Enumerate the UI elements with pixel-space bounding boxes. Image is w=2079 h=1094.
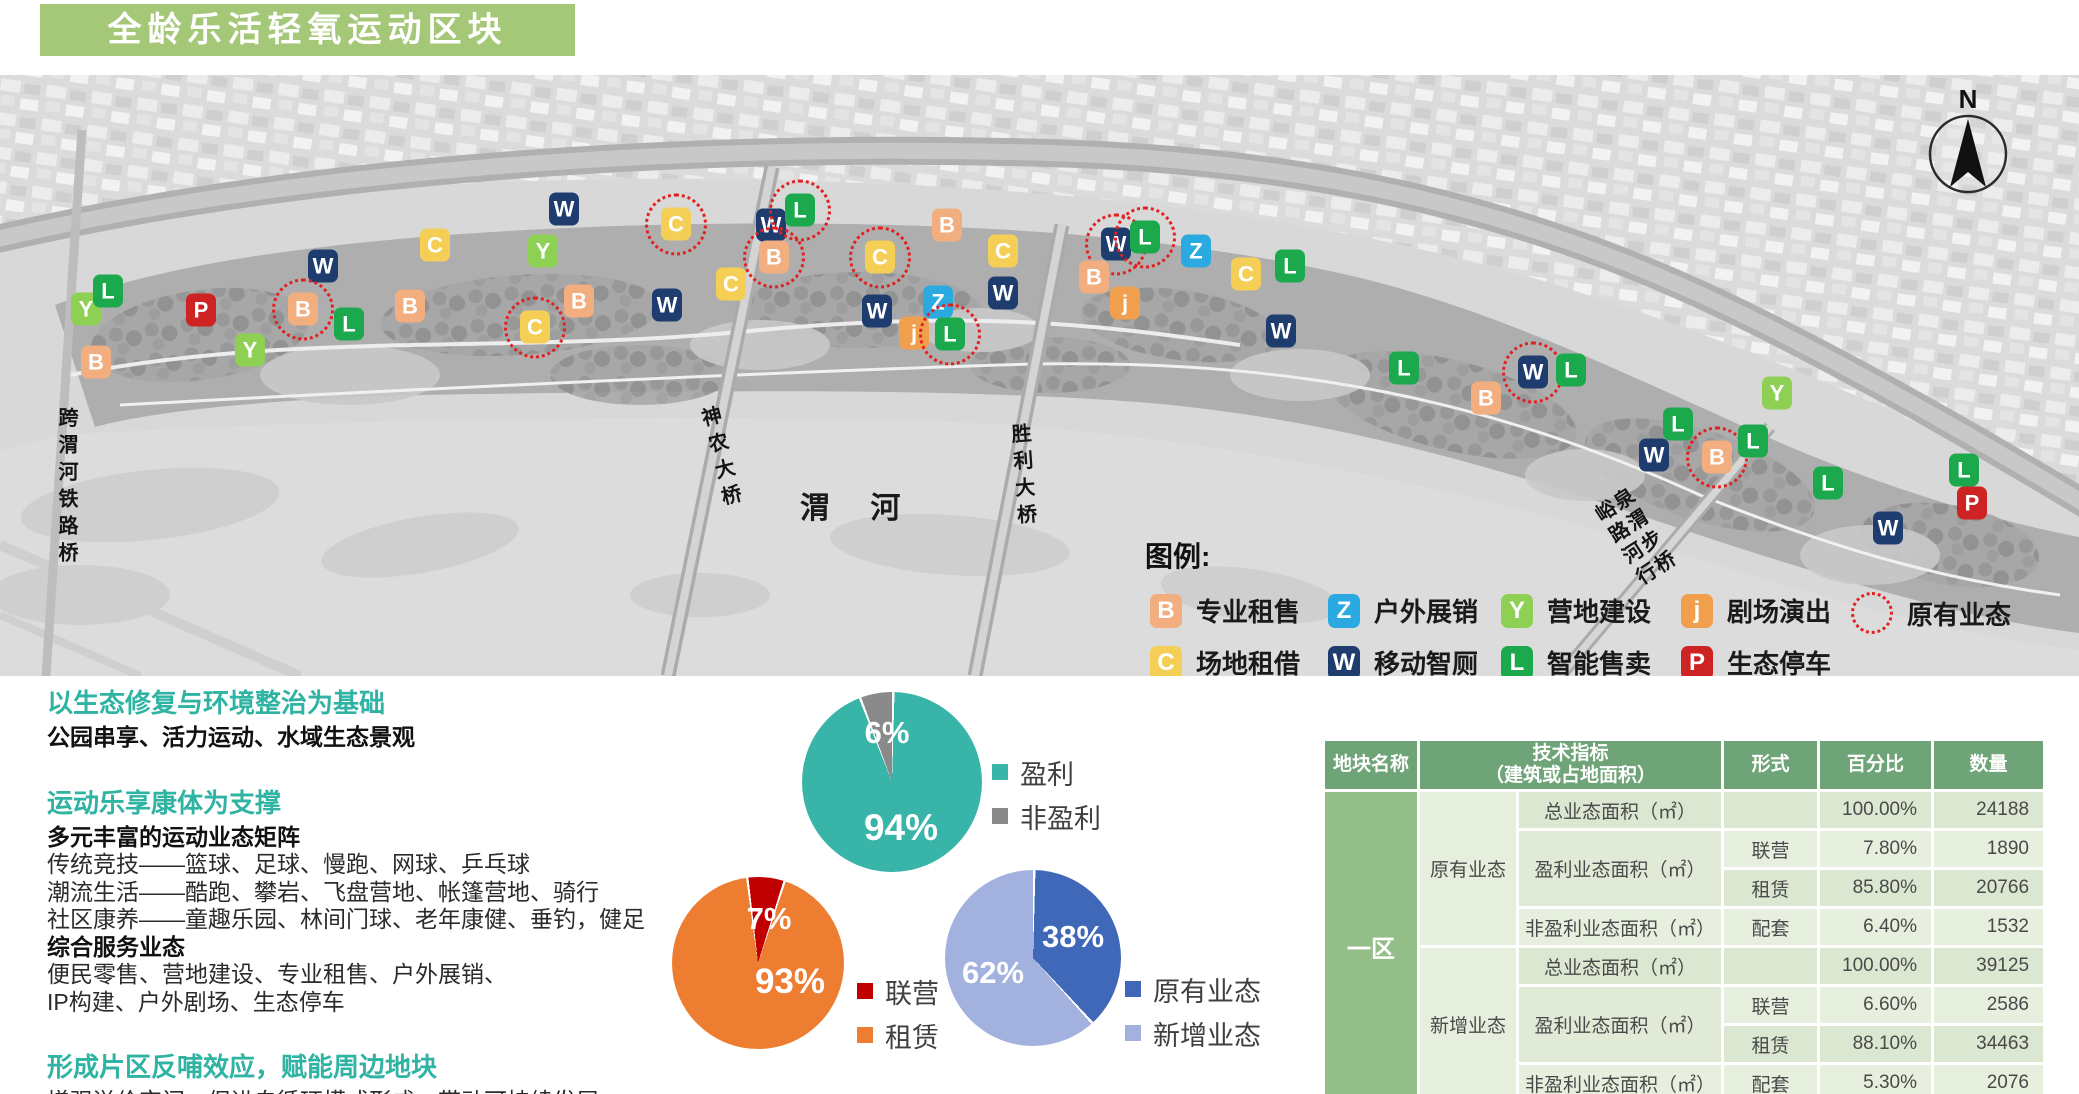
legend-item-label: 场地租借 (1196, 644, 1300, 676)
section-line: 传统竞技——篮球、足球、慢跑、网球、乒乓球 (47, 851, 687, 879)
map-legend-title: 图例: (1145, 535, 1210, 575)
legend-badge-B-icon: B (1150, 594, 1182, 628)
map-marker-W: W (862, 295, 892, 328)
map-marker-W: W (988, 277, 1018, 310)
map-marker-L: L (1813, 467, 1843, 500)
zone-cell: 一区 (1324, 791, 1419, 1094)
text-section-2: 形成片区反哺效应，赋能周边地块增强溢价空间，促进自循环模式形成，带动可持续发展 (47, 1052, 687, 1094)
section-line: 综合服务业态 (47, 934, 687, 962)
compass-icon (1925, 111, 2011, 197)
table-header: 百分比 (1819, 740, 1933, 791)
map-marker-W: W (652, 289, 682, 322)
percent-cell: 85.80% (1819, 869, 1933, 908)
legend-item-label: 原有业态 (1907, 595, 2011, 632)
legend-item-W: W移动智厕 (1328, 644, 1478, 676)
map-marker-L: L (935, 318, 965, 351)
category-cell: 新增业态 (1419, 947, 1518, 1094)
map-marker-B: B (1079, 261, 1109, 294)
indicator-cell: 盈利业态面积（㎡） (1518, 986, 1723, 1064)
pie-legend-label: 非盈利 (1020, 797, 1101, 836)
section-line: 潮流生活——酷跑、攀岩、飞盘营地、帐篷营地、骑行 (47, 879, 687, 907)
map-marker-Y: Y (528, 235, 558, 268)
form-cell (1723, 947, 1819, 986)
quantity-cell: 24188 (1933, 791, 2045, 830)
pie-percent-label: 93% (755, 962, 825, 1002)
legend-item-label: 营地建设 (1547, 592, 1651, 629)
table-header: 地块名称 (1324, 740, 1419, 791)
quantity-cell: 34463 (1933, 1025, 2045, 1064)
map-marker-L: L (1275, 250, 1305, 283)
map-marker-L: L (334, 308, 364, 341)
map-marker-B: B (1471, 382, 1501, 415)
table-header: 形式 (1723, 740, 1819, 791)
pie-percent-label: 6% (865, 715, 910, 751)
aerial-map: 跨渭河铁路桥 神农大桥 胜利大桥 峪泉 路渭 河步 行桥 渭 河 N YLBPY… (0, 75, 2079, 676)
map-marker-C: C (1231, 258, 1261, 291)
map-marker-L: L (1663, 408, 1693, 441)
section-line: IP构建、户外剧场、生态停车 (47, 989, 687, 1017)
form-cell: 联营 (1723, 986, 1819, 1025)
pie-percent-label: 7% (747, 901, 792, 937)
legend-item-j: j剧场演出 (1681, 592, 1831, 629)
section-line: 社区康养——童趣乐园、林间门球、老年康健、垂钓，健足 (47, 906, 687, 934)
form-cell: 配套 (1723, 908, 1819, 947)
percent-cell: 5.30% (1819, 1064, 1933, 1094)
pie-legend-entry: 盈利 (992, 750, 1101, 794)
map-marker-C: C (661, 208, 691, 241)
map-marker-L: L (1556, 354, 1586, 387)
legend-swatch-icon (992, 808, 1008, 824)
indicator-cell: 总业态面积（㎡） (1518, 947, 1723, 986)
map-marker-B: B (564, 285, 594, 318)
legend-badge-P-icon: P (1681, 646, 1713, 677)
form-cell: 租赁 (1723, 869, 1819, 908)
section-heading: 形成片区反哺效应，赋能周边地块 (47, 1052, 687, 1082)
pie-legend-label: 租赁 (885, 1016, 939, 1055)
pie-chart-0: 94%6%盈利非盈利 (802, 692, 982, 872)
map-marker-C: C (865, 241, 895, 274)
map-marker-L: L (1949, 454, 1979, 487)
map-marker-W: W (308, 250, 338, 283)
pie-chart-2: 38%62%原有业态新增业态 (945, 870, 1121, 1046)
map-marker-L: L (1389, 352, 1419, 385)
quantity-cell: 1532 (1933, 908, 2045, 947)
map-marker-Y: Y (1762, 377, 1792, 410)
table-header: 数量 (1933, 740, 2045, 791)
percent-cell: 100.00% (1819, 947, 1933, 986)
table-header: 技术指标 （建筑或占地面积） (1419, 740, 1723, 791)
legend-item-label: 智能售卖 (1547, 644, 1651, 676)
legend-item-existing: 原有业态 (1851, 592, 2011, 634)
legend-swatch-icon (1125, 981, 1141, 997)
pie-legend-entry: 联营 (857, 969, 939, 1013)
legend-item-P: P生态停车 (1681, 644, 1831, 676)
pie-legend-entry: 租赁 (857, 1013, 939, 1057)
map-marker-B: B (395, 290, 425, 323)
text-section-1: 运动乐享康体为支撑多元丰富的运动业态矩阵传统竞技——篮球、足球、慢跑、网球、乒乓… (47, 788, 687, 1017)
percent-cell: 6.40% (1819, 908, 1933, 947)
map-aerial-art (0, 75, 2079, 676)
section-heading: 运动乐享康体为支撑 (47, 788, 687, 818)
indicator-cell: 盈利业态面积（㎡） (1518, 830, 1723, 908)
legend-item-B: B专业租售 (1150, 592, 1300, 629)
legend-item-label: 专业租售 (1196, 592, 1300, 629)
map-marker-Z: Z (1181, 235, 1211, 268)
form-cell: 配套 (1723, 1064, 1819, 1094)
pie-percent-label: 62% (962, 955, 1024, 991)
legend-badge-W-icon: W (1328, 646, 1360, 677)
map-marker-C: C (520, 311, 550, 344)
table-row: 一区原有业态总业态面积（㎡）100.00%24188 (1324, 791, 2045, 830)
indicator-cell: 非盈利业态面积（㎡） (1518, 1064, 1723, 1094)
legend-item-C: C场地租借 (1150, 644, 1300, 676)
map-marker-W: W (1639, 439, 1669, 472)
legend-swatch-icon (1125, 1025, 1141, 1041)
page-title: 全龄乐活轻氧运动区块 (40, 4, 575, 56)
pie-legend-label: 盈利 (1020, 753, 1074, 792)
quantity-cell: 2076 (1933, 1064, 2045, 1094)
legend-item-label: 生态停车 (1727, 644, 1831, 676)
legend-swatch-icon (857, 1027, 873, 1043)
dotted-circle-icon (1851, 592, 1893, 634)
north-label: N (1922, 87, 2014, 111)
pie-legend-entry: 原有业态 (1125, 967, 1261, 1011)
percent-cell: 7.80% (1819, 830, 1933, 869)
map-marker-Y: Y (235, 334, 265, 367)
map-marker-B: B (288, 293, 318, 326)
map-marker-C: C (420, 229, 450, 262)
legend-badge-Z-icon: Z (1328, 594, 1360, 628)
legend-swatch-icon (992, 764, 1008, 780)
percent-cell: 100.00% (1819, 791, 1933, 830)
percent-cell: 6.60% (1819, 986, 1933, 1025)
pie-percent-label: 94% (864, 807, 938, 849)
planning-slide: 全龄乐活轻氧运动区块 (0, 0, 2079, 1094)
text-section-0: 以生态修复与环境整治为基础公园串享、活力运动、水域生态景观 (47, 688, 687, 752)
summary-text-panel: 以生态修复与环境整治为基础公园串享、活力运动、水域生态景观运动乐享康体为支撑多元… (47, 688, 687, 1094)
legend-item-label: 剧场演出 (1727, 592, 1831, 629)
map-marker-L: L (1738, 425, 1768, 458)
map-marker-L: L (785, 194, 815, 227)
pie-legend: 联营租赁 (857, 969, 939, 1057)
form-cell (1723, 791, 1819, 830)
legend-swatch-icon (857, 983, 873, 999)
section-line: 多元丰富的运动业态矩阵 (47, 824, 687, 852)
bridge-label-railway: 跨渭河铁路桥 (52, 407, 81, 569)
table-row: 新增业态总业态面积（㎡）100.00%39125 (1324, 947, 2045, 986)
pie-legend-entry: 非盈利 (992, 794, 1101, 838)
legend-item-Z: Z户外展销 (1328, 592, 1478, 629)
legend-badge-L-icon: L (1501, 646, 1533, 677)
pie-chart-1: 7%93%联营租赁 (672, 877, 844, 1049)
legend-item-Y: Y营地建设 (1501, 592, 1651, 629)
pie-legend-label: 原有业态 (1153, 970, 1261, 1009)
river-label: 渭 河 (800, 483, 916, 527)
map-marker-P: P (1957, 487, 1987, 520)
legend-item-label: 户外展销 (1374, 592, 1478, 629)
map-marker-C: C (716, 268, 746, 301)
indicator-cell: 非盈利业态面积（㎡） (1518, 908, 1723, 947)
section-line: 增强溢价空间，促进自循环模式形成，带动可持续发展 (47, 1088, 687, 1094)
map-marker-B: B (81, 346, 111, 379)
legend-item-L: L智能售卖 (1501, 644, 1651, 676)
legend-badge-Y-icon: Y (1501, 594, 1533, 628)
legend-item-label: 移动智厕 (1374, 644, 1478, 676)
map-marker-L: L (93, 275, 123, 308)
map-marker-W: W (1518, 356, 1548, 389)
pie-legend-label: 联营 (885, 972, 939, 1011)
quantity-cell: 39125 (1933, 947, 2045, 986)
pie-legend: 原有业态新增业态 (1125, 967, 1261, 1055)
quantity-cell: 20766 (1933, 869, 2045, 908)
map-marker-W: W (1266, 315, 1296, 348)
map-marker-j: j (1110, 287, 1140, 320)
pie-legend: 盈利非盈利 (992, 750, 1101, 838)
map-marker-W: W (1873, 512, 1903, 545)
map-marker-C: C (988, 235, 1018, 268)
pie-legend-entry: 新增业态 (1125, 1011, 1261, 1055)
form-cell: 联营 (1723, 830, 1819, 869)
section-heading: 以生态修复与环境整治为基础 (47, 688, 687, 718)
legend-badge-C-icon: C (1150, 646, 1182, 677)
section-line: 便民零售、营地建设、专业租售、户外展销、 (47, 961, 687, 989)
north-compass: N (1922, 87, 2014, 207)
map-marker-L: L (1130, 221, 1160, 254)
percent-cell: 88.10% (1819, 1025, 1933, 1064)
category-cell: 原有业态 (1419, 791, 1518, 947)
map-marker-P: P (186, 294, 216, 327)
indicator-table: 地块名称技术指标 （建筑或占地面积）形式百分比数量一区原有业态总业态面积（㎡）1… (1322, 738, 2046, 1094)
form-cell: 租赁 (1723, 1025, 1819, 1064)
map-marker-B: B (932, 209, 962, 242)
map-marker-B: B (759, 241, 789, 274)
map-marker-W: W (549, 193, 579, 226)
quantity-cell: 1890 (1933, 830, 2045, 869)
quantity-cell: 2586 (1933, 986, 2045, 1025)
pie-legend-label: 新增业态 (1153, 1014, 1261, 1053)
section-line: 公园串享、活力运动、水域生态景观 (47, 724, 687, 752)
indicator-cell: 总业态面积（㎡） (1518, 791, 1723, 830)
legend-badge-j-icon: j (1681, 594, 1713, 628)
pie-percent-label: 38% (1042, 919, 1104, 955)
map-marker-B: B (1702, 441, 1732, 474)
